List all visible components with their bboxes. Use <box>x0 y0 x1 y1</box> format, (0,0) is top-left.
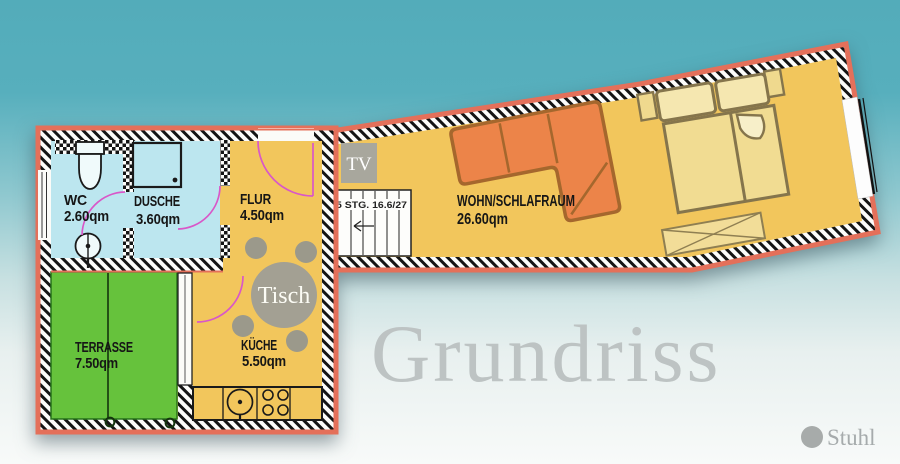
chair-symbol-icon <box>801 426 823 448</box>
wall-dusche-flur-top <box>220 140 230 186</box>
sink-drain <box>238 400 242 404</box>
toilet-bowl <box>79 154 101 189</box>
tv-unit: TV <box>341 143 377 183</box>
tv-label: TV <box>346 154 372 175</box>
staircase-label: 5 STG. 16.6/27 <box>336 200 407 211</box>
bed-pillow-right <box>715 74 769 112</box>
legend-chair: Stuhl <box>801 425 876 450</box>
wall-dusche-flur-bottom <box>220 225 230 258</box>
washbasin-drain <box>86 244 91 249</box>
nightstand-left <box>637 92 657 120</box>
chair-top-right <box>295 241 317 263</box>
room-terrasse-area: 7.50qm <box>75 355 118 372</box>
entry-opening-top-wall <box>258 128 314 141</box>
chair-bottom-left <box>232 315 254 337</box>
bath-bottom-wall <box>51 258 223 271</box>
window-left-glass <box>38 170 51 240</box>
room-dusche-area: 3.60qm <box>136 211 180 228</box>
wall-wc-dusche-bottom <box>123 228 134 258</box>
toilet-tank <box>76 142 104 154</box>
table-label: Tisch <box>258 283 310 309</box>
room-wohn-area: 26.60qm <box>457 211 508 228</box>
bed-mattress <box>663 105 788 212</box>
room-flur-name: FLUR <box>240 191 271 208</box>
room-terrasse-name: TERRASSE <box>75 339 133 356</box>
room-wc-name: WC <box>64 192 87 209</box>
room-dusche-name: DUSCHE <box>134 193 180 210</box>
room-kueche-area: 5.50qm <box>242 353 286 370</box>
staircase: 5 STG. 16.6/27 <box>333 190 411 256</box>
wall-stub-kueche <box>178 385 193 419</box>
room-wc-area: 2.60qm <box>64 208 109 225</box>
room-wohn-name: WOHN/SCHLAFRAUM <box>457 193 575 210</box>
chair-top-left <box>245 237 267 259</box>
shower-drain <box>173 178 178 183</box>
chair-bottom-right <box>286 330 308 352</box>
legend-chair-label: Stuhl <box>827 425 876 450</box>
terrace-door-icon <box>178 273 192 385</box>
room-flur-area: 4.50qm <box>240 207 284 224</box>
floor-plan-page: Grundriss Stuhl 5 STG. 16.6/27 TV <box>0 0 900 464</box>
window-left-wall-icon <box>38 170 51 240</box>
room-kueche-name: KÜCHE <box>241 337 277 354</box>
watermark-title: Grundriss <box>371 308 721 399</box>
left-block: Tisch WC 2.60qm DUSCHE 3.60qm FLUR 4.50q… <box>38 128 336 432</box>
